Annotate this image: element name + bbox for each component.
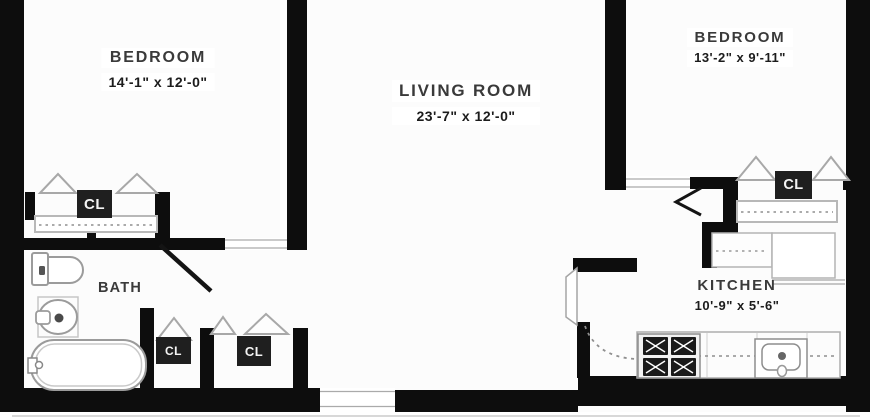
wall-stub-hall-closet-left bbox=[200, 328, 214, 390]
toilet-icon bbox=[32, 253, 83, 285]
wall-bedroom-right-left bbox=[605, 0, 626, 190]
room-label-bedroom-right: BEDROOM 13'-2" x 9'-11" bbox=[687, 28, 793, 67]
room-name: BEDROOM bbox=[101, 48, 214, 68]
upper-cabinet-icon bbox=[712, 233, 772, 267]
room-label-living-room: LIVING ROOM 23'-7" x 12'-0" bbox=[392, 80, 540, 125]
opening-bedroom-right bbox=[626, 176, 690, 190]
room-name: LIVING ROOM bbox=[392, 80, 540, 102]
closet-shelf bbox=[35, 216, 157, 232]
floor-plan: BEDROOM 14'-1" x 12'-0" LIVING ROOM 23'-… bbox=[0, 0, 870, 420]
wall-closet-band bbox=[24, 238, 225, 250]
wall-bottom-middle bbox=[395, 390, 578, 412]
bathtub-icon bbox=[28, 340, 146, 390]
room-name: BATH bbox=[91, 279, 149, 298]
sink-drain bbox=[778, 352, 786, 360]
wall-bottom-left bbox=[0, 388, 320, 412]
wall-right bbox=[846, 0, 870, 412]
room-label-kitchen: KITCHEN 10'-9" x 5'-6" bbox=[688, 276, 787, 315]
refrigerator-outline bbox=[772, 233, 835, 278]
room-dims: 23'-7" x 12'-0" bbox=[392, 107, 540, 125]
wall-bottom-kitchen bbox=[578, 376, 870, 406]
room-dims: 10'-9" x 5'-6" bbox=[688, 298, 787, 315]
room-dims: 13'-2" x 9'-11" bbox=[687, 50, 793, 67]
wall-chamfer-column bbox=[566, 268, 577, 325]
room-name: KITCHEN bbox=[688, 276, 787, 295]
wall-stub-closet-left bbox=[25, 192, 35, 220]
wall-stub-hall-closet-right bbox=[293, 328, 308, 390]
closet-label-bath: CL bbox=[156, 337, 191, 364]
toilet-bowl bbox=[48, 257, 83, 283]
room-label-bedroom-left: BEDROOM 14'-1" x 12'-0" bbox=[101, 48, 214, 91]
room-name: BEDROOM bbox=[687, 28, 793, 47]
wall-kitchen-entry-side bbox=[577, 322, 590, 378]
closet-label-bedroom-left: CL bbox=[77, 190, 112, 218]
wall-kitchen-entry-top bbox=[573, 258, 637, 272]
tub-faucet-knob bbox=[36, 362, 43, 369]
sink-drain bbox=[55, 314, 64, 323]
closet-label-hall: CL bbox=[237, 336, 271, 366]
wall-bedroom-left-right bbox=[287, 0, 307, 250]
closet-label-bedroom-right: CL bbox=[775, 171, 812, 199]
wall-left bbox=[0, 0, 24, 412]
room-label-bath: BATH bbox=[91, 279, 149, 298]
cabinet-outline bbox=[712, 233, 772, 267]
sink-faucet bbox=[36, 311, 50, 324]
sink-faucet bbox=[778, 366, 787, 377]
wall-kitchen-top-vertical bbox=[723, 177, 738, 224]
kitchen-sink-icon bbox=[755, 339, 807, 378]
tub-outer bbox=[31, 340, 146, 390]
stove-icon bbox=[638, 334, 700, 378]
toilet-flush-button bbox=[39, 266, 45, 275]
room-dims: 14'-1" x 12'-0" bbox=[101, 73, 214, 91]
